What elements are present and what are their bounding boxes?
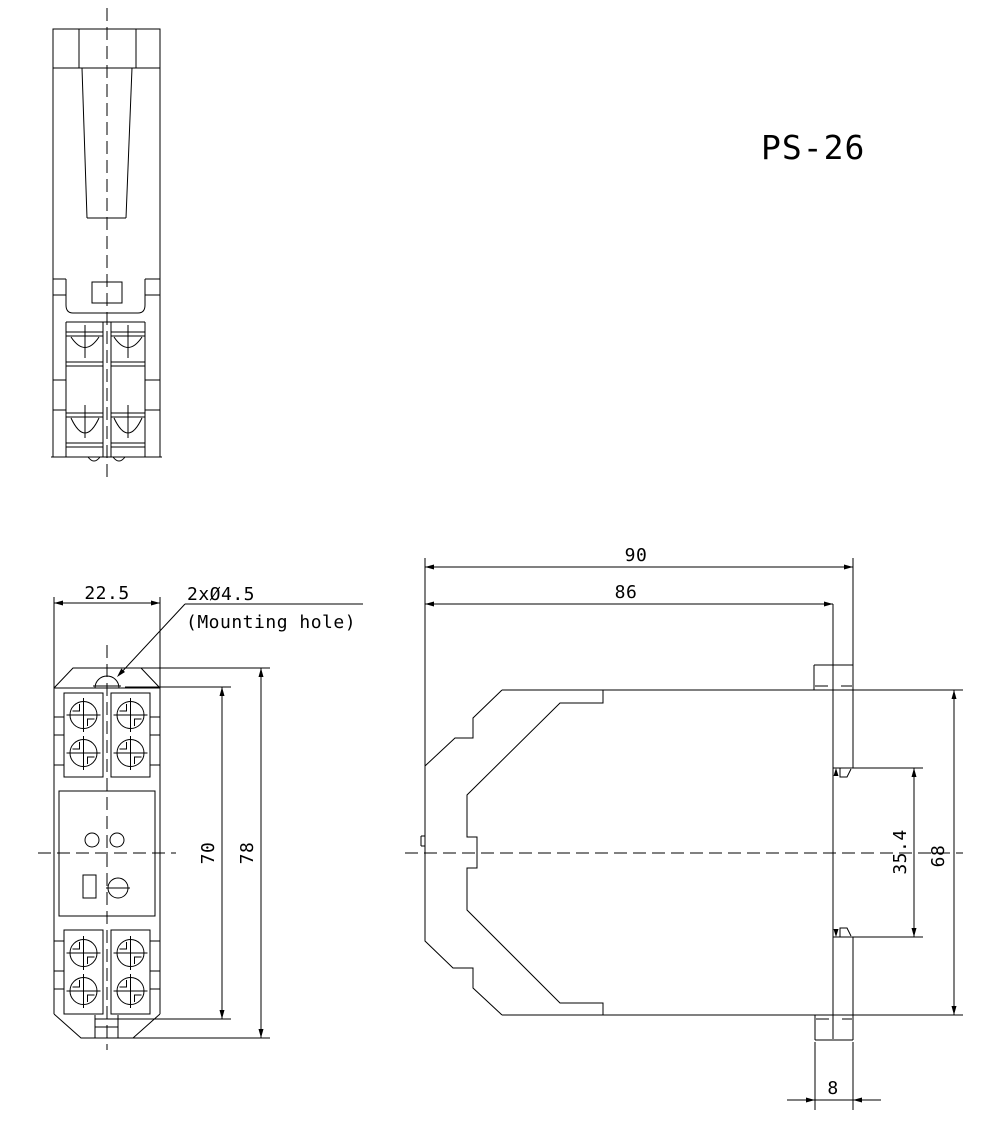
mounting-hole-label: 2xØ4.5 bbox=[187, 584, 255, 605]
side-depth-inner-dimension: 86 bbox=[615, 582, 638, 603]
din-slot-dimension: 35.4 bbox=[890, 829, 911, 874]
front-view-dimension-lines bbox=[54, 597, 363, 1038]
front-view: 22.5 2xØ4.5 (Mounting hole) 70 78 bbox=[38, 583, 363, 1050]
technical-drawing: 22.5 2xØ4.5 (Mounting hole) 70 78 90 86 … bbox=[0, 0, 1000, 1122]
side-view-dimension-lines bbox=[425, 558, 954, 1110]
mounting-hole-note: (Mounting hole) bbox=[186, 612, 356, 633]
front-view-dimension-arrows bbox=[54, 601, 264, 1039]
tab-width-dimension: 8 bbox=[827, 1078, 838, 1099]
side-view-dimension-arrows bbox=[425, 565, 957, 1103]
led-indicator-icon bbox=[85, 833, 99, 847]
drawing-canvas: 22.5 2xØ4.5 (Mounting hole) 70 78 90 86 … bbox=[0, 0, 1000, 1122]
top-view bbox=[51, 8, 162, 478]
front-width-dimension: 22.5 bbox=[84, 583, 129, 604]
led-indicator-icon bbox=[110, 833, 124, 847]
side-view-outline bbox=[421, 604, 963, 1040]
side-height-dimension: 68 bbox=[928, 845, 949, 868]
front-height-inner-dimension: 70 bbox=[198, 842, 219, 865]
drawing-title: PS-26 bbox=[761, 128, 865, 167]
side-view: 90 86 35.4 68 8 bbox=[405, 545, 963, 1110]
side-depth-outer-dimension: 90 bbox=[625, 545, 648, 566]
front-height-outer-dimension: 78 bbox=[237, 842, 258, 865]
